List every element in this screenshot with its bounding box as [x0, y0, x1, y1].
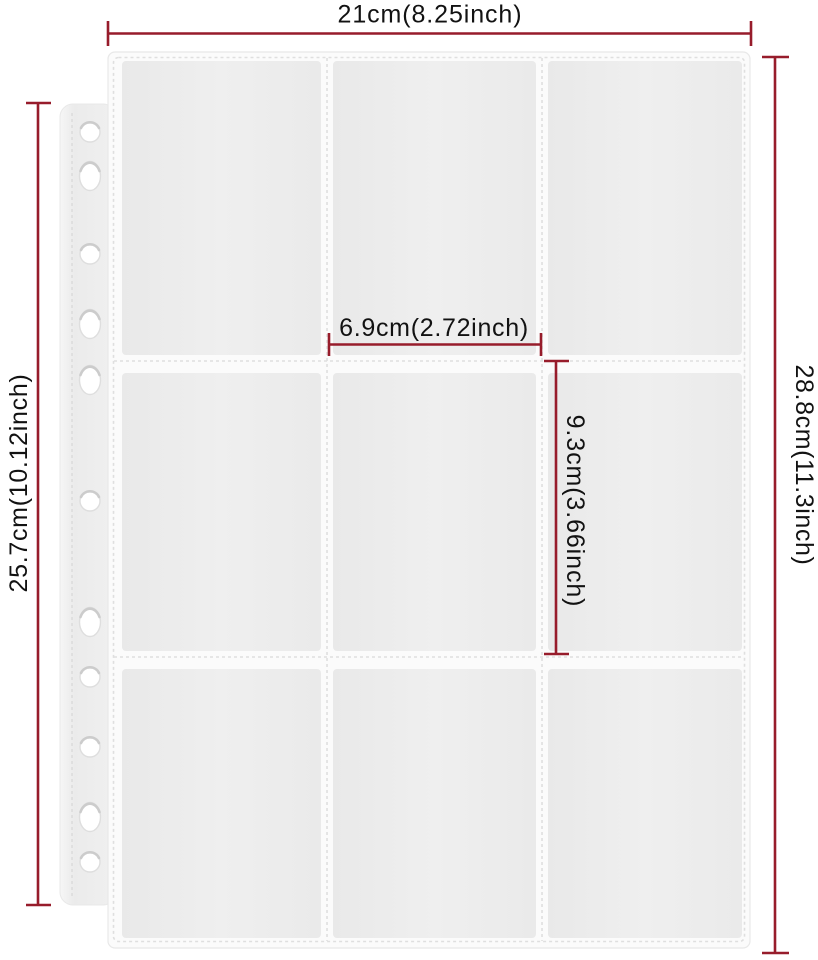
svg-text:28.8cm(11.3inch): 28.8cm(11.3inch) [790, 365, 818, 566]
svg-text:25.7cm(10.12inch): 25.7cm(10.12inch) [5, 374, 33, 593]
svg-text:21cm(8.25inch): 21cm(8.25inch) [338, 1, 523, 29]
svg-text:9.3cm(3.66inch): 9.3cm(3.66inch) [561, 415, 589, 608]
svg-text:6.9cm(2.72inch): 6.9cm(2.72inch) [339, 314, 529, 342]
